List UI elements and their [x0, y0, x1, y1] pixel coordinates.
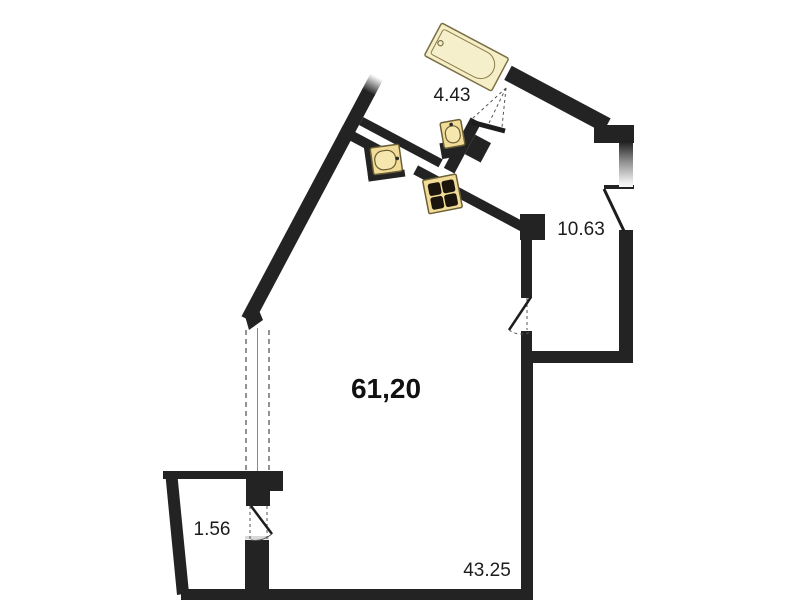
balcony-top-wall [163, 471, 247, 479]
bathroom-block [242, 9, 611, 426]
balcony-door-block [245, 540, 269, 592]
balcony-door-leaf [251, 506, 272, 534]
walls [163, 9, 634, 600]
bottom-wall [181, 589, 533, 600]
balcony-pier [246, 471, 283, 491]
studio-total-area-label: 61,20 [351, 373, 421, 404]
right-window [619, 141, 633, 187]
fixtures [364, 23, 509, 214]
hall-area-label: 10.63 [557, 219, 605, 240]
living-zone-area-label: 43.25 [463, 560, 511, 581]
bath-outer-left-wall [242, 88, 375, 322]
entry-door-leaf [604, 189, 624, 231]
hall-door-leaf [509, 297, 531, 330]
balcony-area-label: 1.56 [194, 519, 231, 540]
floor-plan-drawing: 4.43 10.63 61,20 1.56 43.25 [0, 0, 800, 600]
bath-door-swing-ray-1 [473, 88, 506, 118]
stove-icon [423, 174, 463, 214]
bath-door-swing-ray-2 [489, 88, 506, 123]
bathtub-icon [424, 23, 508, 91]
hall-left-wall-upper [521, 238, 532, 298]
balcony-left-wall [165, 471, 189, 595]
floor-plan-canvas: 4.43 10.63 61,20 1.56 43.25 [0, 0, 800, 600]
hall-bottom-wall [521, 351, 633, 363]
main-right-wall [521, 351, 533, 600]
bathroom-area-label: 4.43 [434, 85, 471, 106]
doors [250, 88, 624, 540]
balcony-pier-step [246, 489, 270, 506]
small-washbasin-icon [436, 119, 467, 159]
right-wall [619, 230, 633, 352]
bath-door-swing-ray-3 [502, 88, 506, 127]
bath-top-right-outer-wall [504, 66, 610, 133]
